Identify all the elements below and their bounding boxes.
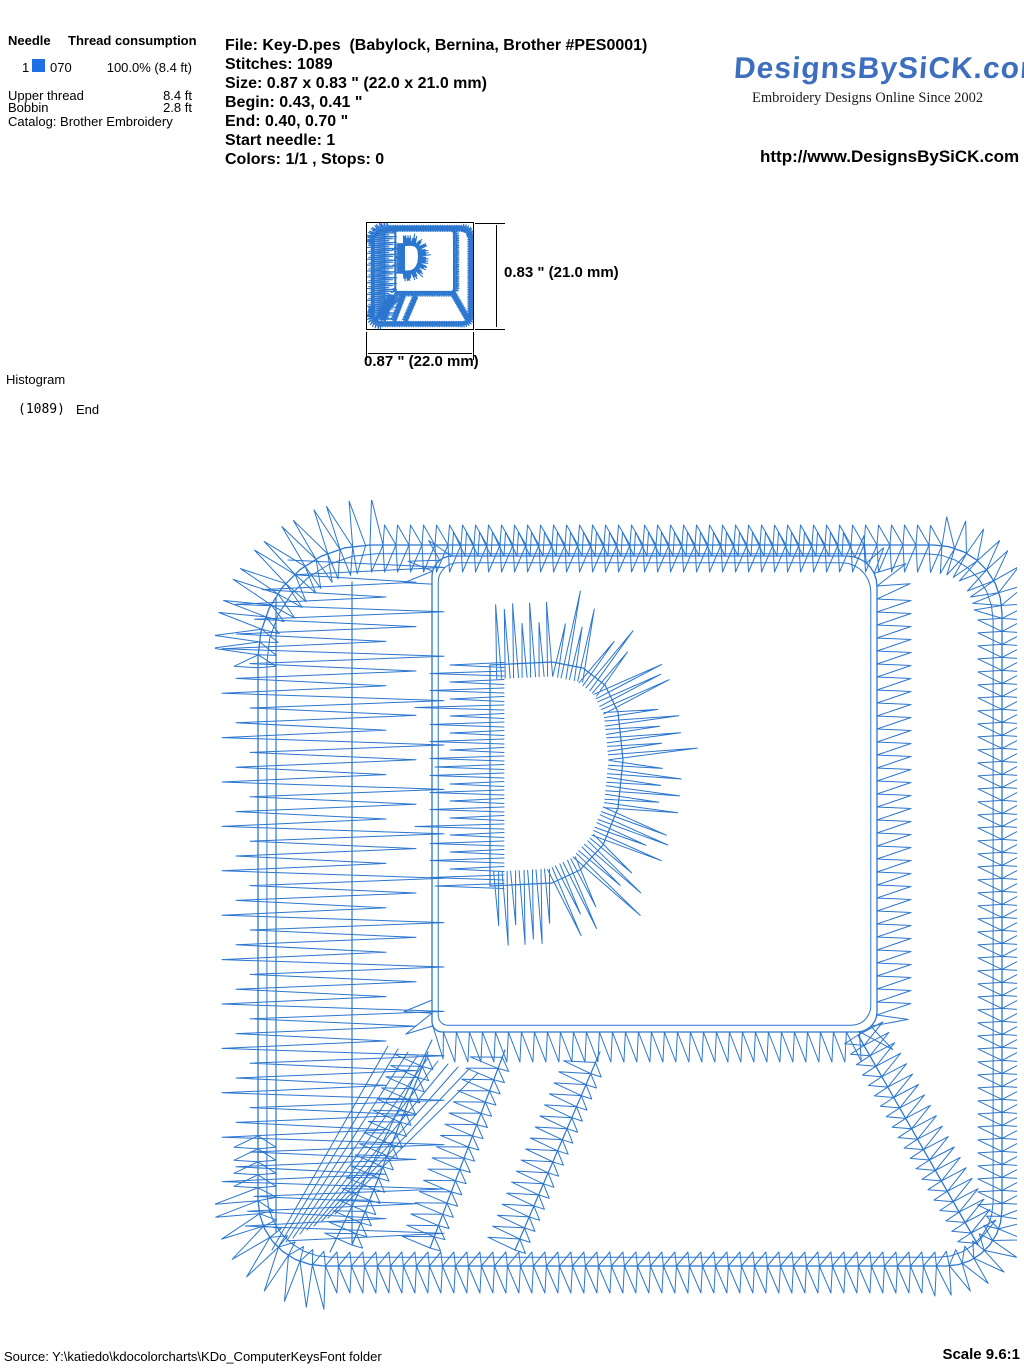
histogram-stitch-count: (1089) [18,403,65,416]
size-line: Size: 0.87 x 0.83 " (22.0 x 21.0 mm) [225,74,745,93]
height-dimension-label: 0.83 " (21.0 mm) [504,264,619,281]
stitch-preview [215,500,1017,1310]
needle-column-header: Needle [8,34,51,47]
scale-label: Scale 9.6:1 [880,1346,1020,1363]
file-name-line: File: Key-D.pes (Babylock, Bernina, Brot… [225,36,745,55]
stitches-line: Stitches: 1089 [225,55,745,74]
file-info: File: Key-D.pes (Babylock, Bernina, Brot… [225,36,745,169]
thread-consumption-value: 100.0% (8.4 ft) [100,61,192,74]
end-line: End: 0.40, 0.70 " [225,112,745,131]
bobbin-value: 2.8 ft [110,101,192,114]
print-preview-page: { "needle_table": { "header_needle": "Ne… [0,0,1024,1370]
histogram-title: Histogram [6,373,65,386]
catalog-label: Catalog: Brother Embroidery [8,115,173,128]
thumbnail-frame [367,223,506,361]
bobbin-label: Bobbin [8,101,48,114]
start-needle-line: Start needle: 1 [225,131,745,150]
histogram-end-label: End [76,403,99,416]
thread-consumption-header: Thread consumption [68,34,197,47]
needle-number: 1 [22,61,29,74]
brand-tagline: Embroidery Designs Online Since 2002 [752,90,983,107]
brand-logo: DesignsBySiCK.com [733,52,1024,86]
begin-line: Begin: 0.43, 0.41 " [225,93,745,112]
thread-color-code: 070 [50,61,72,74]
source-path: Source: Y:\katiedo\kdocolorcharts\KDo_Co… [4,1350,382,1363]
width-dimension-label: 0.87 " (22.0 mm) [364,353,479,370]
brand-url: http://www.DesignsBySiCK.com [760,147,1019,167]
thread-color-swatch [32,59,45,72]
colors-line: Colors: 1/1 , Stops: 0 [225,150,745,169]
